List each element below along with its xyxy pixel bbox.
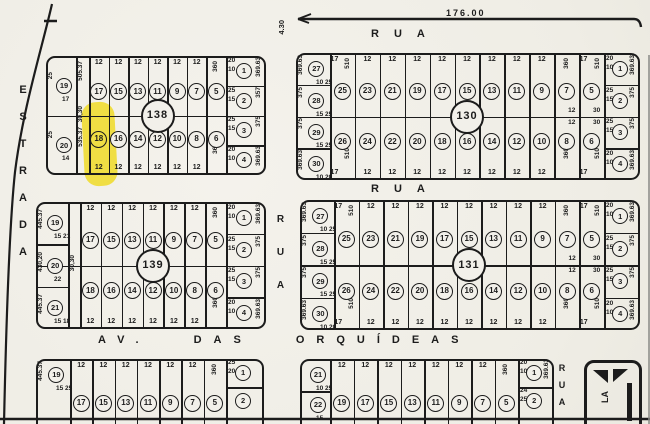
lot-131-19: 19: [411, 231, 428, 248]
dimension-label: 375: [298, 118, 305, 129]
parcel-line: [380, 55, 382, 178]
lot-bottom-right-7: 7: [474, 395, 491, 412]
block-number-138: 138: [141, 99, 175, 133]
width-label: 12: [193, 59, 201, 66]
parcel-line: [354, 361, 356, 424]
lot-138-2: 2: [236, 93, 252, 109]
width-label: 12: [385, 362, 393, 369]
dimension-label: 20: [606, 150, 613, 157]
dimension-label: 20: [228, 57, 235, 64]
width-label: 12: [465, 319, 473, 326]
lot-131-7: 7: [559, 231, 576, 248]
width-label: 12: [128, 205, 136, 212]
parcel-line: [554, 55, 556, 178]
lot-138-5: 5: [208, 83, 225, 100]
dimension-label: 15: [606, 244, 613, 251]
dimension-label: 30,30: [78, 106, 85, 122]
dimension-label: 25: [325, 79, 332, 86]
parcel-line: [115, 361, 117, 424]
width-label: 12: [100, 362, 108, 369]
width-label: 17: [334, 203, 342, 210]
dimension-label: 510: [595, 205, 602, 216]
dimension-label: 25: [65, 385, 72, 392]
dimension-label: 510: [349, 205, 356, 216]
width-label: 12: [154, 59, 162, 66]
dimension-label: 375: [298, 87, 305, 98]
parcel-line: [471, 361, 473, 424]
lot-bottom-right-22: 22: [310, 397, 326, 413]
lot-131-8: 8: [559, 283, 576, 300]
dimension-label: 25: [329, 291, 336, 298]
dimension-label: 25: [325, 385, 332, 392]
width-label: 17: [334, 319, 342, 326]
width-label: 12: [488, 56, 496, 63]
lot-bottom-right-9: 9: [451, 395, 468, 412]
lot-131-9: 9: [534, 231, 551, 248]
dimension-label: 12: [568, 119, 575, 126]
dimension-label: 375: [302, 267, 309, 278]
street-label-rua-center-vertical: RUA: [275, 214, 286, 313]
dimension-label: 25: [48, 72, 55, 79]
dimension-label: 25: [228, 236, 235, 243]
dimension-label: 375: [630, 118, 637, 129]
dimension-label: 375: [630, 87, 637, 98]
lot-131-21: 21: [387, 231, 404, 248]
block-number-130: 130: [450, 100, 484, 134]
lot-130-28: 28: [308, 93, 324, 109]
parcel-line: [184, 204, 186, 327]
width-label: 17: [331, 169, 339, 176]
dimension-label: 510: [595, 298, 602, 309]
parcel-line: [504, 55, 506, 178]
lot-138-12: 12: [149, 131, 166, 148]
dimension-label: 30: [593, 255, 600, 262]
width-label: 12: [416, 203, 424, 210]
dimension-label: 357: [256, 87, 263, 98]
width-label: 12: [514, 319, 522, 326]
street-label-estrada: ESTRADA: [17, 84, 29, 273]
dimension-label: 25: [48, 131, 55, 138]
width-label: 17: [580, 319, 588, 326]
width-label: 12: [432, 362, 440, 369]
dimension-label: 360: [213, 61, 220, 72]
lot-bottom-left-17: 17: [73, 395, 90, 412]
width-label: 12: [173, 164, 181, 171]
lot-131-13: 13: [485, 231, 502, 248]
lot-139-7: 7: [186, 232, 203, 249]
dimension-label: 369.63: [256, 146, 263, 166]
lot-139-17: 17: [82, 232, 99, 249]
parcel-line: [506, 202, 508, 328]
dimension-label: 369.63: [256, 57, 263, 77]
lot-138-10: 10: [169, 131, 186, 148]
width-label: 12: [438, 169, 446, 176]
width-label: 12: [391, 203, 399, 210]
dimension-label: 10: [320, 324, 327, 331]
dimension-label: 25: [228, 87, 235, 94]
width-label: 12: [388, 56, 396, 63]
width-label: 12: [134, 59, 142, 66]
dimension-label: 25: [325, 111, 332, 118]
width-label: 12: [114, 59, 122, 66]
dimension-label: 375: [302, 235, 309, 246]
dimension-label: 25: [606, 87, 613, 94]
dimension-label: 535.37: [78, 127, 85, 147]
dimension-label: 30: [593, 119, 600, 126]
dimension-label: 15: [54, 233, 61, 240]
lot-138-19: 19: [56, 78, 72, 94]
lot-131-18: 18: [436, 283, 453, 300]
parcel-line: [579, 55, 581, 178]
width-label: 12: [490, 319, 498, 326]
dimension-label: 10: [228, 66, 235, 73]
width-label: 12: [513, 169, 521, 176]
lot-130-19: 19: [409, 83, 426, 100]
width-label: 12: [144, 362, 152, 369]
lot-130-16: 16: [459, 133, 476, 150]
dimension-label: 510: [345, 58, 352, 69]
dimension-label: 12: [568, 267, 575, 274]
lot-131-10: 10: [534, 283, 551, 300]
width-label: 12: [465, 203, 473, 210]
lot-bottom-right-15: 15: [380, 395, 397, 412]
dimension-label: 369.63: [302, 300, 309, 320]
dimension-label: 10: [228, 308, 235, 315]
dimension-label: 25: [606, 267, 613, 274]
street-label-rua-bottom-right: RUA: [557, 363, 567, 414]
parcel-line: [205, 204, 207, 327]
dimension-label: 369.63: [298, 150, 305, 170]
plat-map-canvas: ESTRADA RUA RUA RUA AV. DAS ORQUÍDEAS RU…: [0, 0, 650, 424]
lot-130-21: 21: [384, 83, 401, 100]
dimension-label: 15: [606, 96, 613, 103]
dimension-label: 445.37: [38, 361, 45, 381]
parcel-line: [432, 202, 434, 328]
lot-138-8: 8: [188, 131, 205, 148]
dimension-label: 369.63: [302, 202, 309, 222]
width-label: 12: [191, 318, 199, 325]
lot-138-9: 9: [169, 83, 186, 100]
dimension-label: 375: [256, 267, 263, 278]
lot-130-9: 9: [533, 83, 550, 100]
dimension-label: 10: [606, 211, 613, 218]
parcel-line: [383, 202, 385, 328]
dimension-label: 30: [593, 267, 600, 274]
parcel-line: [579, 202, 581, 328]
corner-bar: [627, 383, 632, 421]
dimension-label: 25: [228, 267, 235, 274]
street-label-rua-top: RUA: [371, 28, 440, 40]
lot-bottom-left-13: 13: [117, 395, 134, 412]
width-label: 12: [441, 203, 449, 210]
dimension-label: 20: [520, 359, 527, 366]
lot-139-2: 2: [236, 242, 252, 258]
lot-131-23: 23: [362, 231, 379, 248]
width-label: 12: [416, 319, 424, 326]
width-label: 12: [539, 203, 547, 210]
parcel-line: [430, 55, 432, 178]
lot-131-2: 2: [612, 241, 628, 257]
parcel-line: [408, 202, 410, 328]
dimension-label: 25: [325, 142, 332, 149]
parcel-line: [36, 287, 68, 289]
width-label: 12: [87, 205, 95, 212]
dimension-label: 10: [606, 309, 613, 316]
parcel-line: [70, 361, 72, 424]
lot-130-20: 20: [409, 133, 426, 150]
lot-139-11: 11: [145, 232, 162, 249]
width-label: 17: [580, 203, 588, 210]
lot-138-6: 6: [208, 131, 225, 148]
dimension-label: 20: [606, 55, 613, 62]
dimension-label: 14: [62, 155, 69, 162]
parcel-line: [226, 387, 264, 389]
lot-130-17: 17: [434, 83, 451, 100]
lot-130-23: 23: [359, 83, 376, 100]
parcel-line: [405, 55, 407, 178]
parcel-line: [92, 361, 94, 424]
width-label: 12: [367, 203, 375, 210]
parcel-line: [530, 202, 532, 328]
block-number-131: 131: [452, 248, 486, 282]
width-label: 17: [580, 56, 588, 63]
dimension-label: 25: [606, 235, 613, 242]
dimension-label: 369.63: [256, 299, 263, 319]
parcel-line: [187, 58, 189, 173]
width-label: 12: [122, 362, 130, 369]
dimension-label: 360: [503, 364, 510, 375]
dimension-label: 360: [564, 298, 571, 309]
street-label-av-das-orquideas: AV. DAS ORQUÍDEAS: [98, 334, 470, 346]
width-label: 12: [413, 56, 421, 63]
lot-130-18: 18: [434, 133, 451, 150]
width-label: 12: [413, 169, 421, 176]
dimension-label: 20: [228, 204, 235, 211]
parcel-line: [36, 244, 68, 246]
dimension-label: 25: [228, 359, 235, 366]
width-label: 17: [580, 169, 588, 176]
dimension-label: 21: [63, 233, 70, 240]
width-label: 12: [170, 205, 178, 212]
width-label: 12: [463, 56, 471, 63]
width-label: 12: [193, 164, 201, 171]
dimension-label: 20: [606, 300, 613, 307]
dimension-label: 30,30: [70, 255, 77, 271]
width-label: 12: [77, 362, 85, 369]
block-bottom-right: [300, 359, 554, 424]
width-label: 12: [107, 318, 115, 325]
street-label-rua-middle: RUA: [371, 183, 440, 195]
dimension-label: 369.63: [630, 300, 637, 320]
dimension-label: 10: [316, 385, 323, 392]
parcel-line: [330, 361, 332, 424]
measurement-value-label: 176.00: [446, 8, 486, 18]
width-label: 12: [363, 169, 371, 176]
lot-bottom-right-21: 21: [310, 367, 326, 383]
measurement-side-label: 4.30: [278, 20, 286, 35]
lot-139-5: 5: [207, 232, 224, 249]
dimension-label: 369.63: [544, 359, 551, 379]
dimension-label: 20: [606, 202, 613, 209]
width-label: 12: [173, 59, 181, 66]
width-label: 12: [367, 319, 375, 326]
width-label: 12: [87, 318, 95, 325]
dimension-label: 25: [520, 396, 527, 403]
dimension-label: 505.37: [78, 61, 85, 81]
block-number-139: 139: [136, 249, 170, 283]
parcel-line: [448, 361, 450, 424]
lot-bottom-left-2: 2: [235, 393, 251, 409]
lot-131-11: 11: [510, 231, 527, 248]
dimension-label: 15: [316, 142, 323, 149]
lot-bottom-left-5: 5: [206, 395, 223, 412]
dimension-label: 12: [568, 255, 575, 262]
dimension-label: 15: [54, 318, 61, 325]
dimension-label: 25: [329, 259, 336, 266]
dimension-label: 445.37: [38, 209, 45, 229]
width-label: 12: [191, 205, 199, 212]
width-label: 12: [128, 318, 136, 325]
width-label: 12: [538, 56, 546, 63]
dimension-label: 15: [606, 276, 613, 283]
parcel-line: [424, 361, 426, 424]
dimension-label: 430,20: [38, 252, 45, 272]
width-label: 12: [490, 203, 498, 210]
corner-block: LA: [584, 360, 642, 424]
lot-bottom-right-19: 19: [333, 395, 350, 412]
lot-131-14: 14: [485, 283, 502, 300]
measurement-line: [298, 19, 641, 27]
width-label: 12: [408, 362, 416, 369]
lot-131-5: 5: [583, 231, 600, 248]
lot-130-25: 25: [334, 83, 351, 100]
lot-130-7: 7: [558, 83, 575, 100]
lot-130-11: 11: [508, 83, 525, 100]
dimension-label: 360: [213, 207, 220, 218]
parcel-line: [128, 58, 130, 173]
dimension-label: 15: [228, 245, 235, 252]
lot-131-26: 26: [338, 283, 355, 300]
lot-131-22: 22: [387, 283, 404, 300]
parcel-line: [206, 58, 208, 173]
lot-131-20: 20: [411, 283, 428, 300]
parcel-line: [355, 55, 357, 178]
width-label: 12: [166, 362, 174, 369]
parcel-line: [101, 204, 103, 327]
width-label: 12: [441, 319, 449, 326]
dimension-label: 12: [568, 107, 575, 114]
dimension-label: 15: [56, 385, 63, 392]
dimension-label: 10: [228, 213, 235, 220]
lot-131-16: 16: [461, 283, 478, 300]
lot-139-9: 9: [165, 232, 182, 249]
lot-bottom-right-13: 13: [404, 395, 421, 412]
dimension-label: 20: [228, 146, 235, 153]
lot-139-12: 12: [145, 282, 162, 299]
dimension-label: 375: [630, 267, 637, 278]
lot-131-25: 25: [338, 231, 355, 248]
dimension-label: 10: [606, 159, 613, 166]
lot-130-15: 15: [459, 83, 476, 100]
lot-bottom-left-9: 9: [162, 395, 179, 412]
dimension-label: 10: [316, 79, 323, 86]
dimension-label: 25: [228, 116, 235, 123]
dimension-label: 375: [256, 116, 263, 127]
width-label: 12: [170, 318, 178, 325]
dimension-label: 15: [316, 415, 323, 422]
parcel-line: [555, 202, 557, 328]
dimension-label: 360: [212, 364, 219, 375]
width-label: 12: [149, 205, 157, 212]
width-label: 12: [463, 169, 471, 176]
dimension-label: 15: [228, 276, 235, 283]
lot-131-6: 6: [583, 283, 600, 300]
dimension-label: 369.63: [298, 55, 305, 75]
lot-131-24: 24: [362, 283, 379, 300]
lot-bottom-right-17: 17: [357, 395, 374, 412]
width-label: 12: [361, 362, 369, 369]
lot-139-1: 1: [236, 210, 252, 226]
dimension-label: 10: [520, 368, 527, 375]
width-label: 17: [331, 56, 339, 63]
corner-block-label: LA: [601, 391, 610, 403]
lot-139-15: 15: [103, 232, 120, 249]
dimension-label: 18: [63, 318, 70, 325]
width-label: 12: [95, 164, 103, 171]
width-label: 12: [388, 169, 396, 176]
dimension-label: 375: [256, 236, 263, 247]
lot-bottom-left-15: 15: [95, 395, 112, 412]
width-label: 12: [488, 169, 496, 176]
parcel-line: [401, 361, 403, 424]
width-label: 12: [114, 164, 122, 171]
dimension-label: 369.63: [256, 204, 263, 224]
width-label: 12: [391, 319, 399, 326]
dimension-label: 15: [228, 125, 235, 132]
lot-139-4: 4: [236, 305, 252, 321]
dimension-label: 20: [228, 299, 235, 306]
parcel-line: [109, 58, 111, 173]
width-label: 12: [539, 319, 547, 326]
parcel-line: [137, 361, 139, 424]
width-label: 12: [338, 362, 346, 369]
dimension-label: 15: [316, 111, 323, 118]
dimension-label: 22: [54, 276, 61, 283]
parcel-line: [181, 361, 183, 424]
width-label: 12: [95, 59, 103, 66]
dimension-label: 24: [520, 387, 527, 394]
lot-139-21: 21: [47, 300, 63, 316]
corner-hatch-triangle-icon: [593, 370, 608, 383]
dimension-label: 15: [320, 291, 327, 298]
width-label: 12: [363, 56, 371, 63]
dimension-label: 360: [564, 58, 571, 69]
dimension-label: 10: [228, 155, 235, 162]
lot-bottom-left-7: 7: [184, 395, 201, 412]
width-label: 12: [149, 318, 157, 325]
lot-130-2: 2: [612, 93, 628, 109]
parcel-line: [529, 55, 531, 178]
lot-131-12: 12: [510, 283, 527, 300]
dimension-label: 15: [320, 259, 327, 266]
width-label: 12: [189, 362, 197, 369]
lot-bottom-left-1: 1: [235, 365, 251, 381]
lot-139-14: 14: [124, 282, 141, 299]
dimension-label: 510: [595, 58, 602, 69]
lot-138-4: 4: [236, 152, 252, 168]
parcel-line: [159, 361, 161, 424]
dimension-label: 20: [228, 368, 235, 375]
